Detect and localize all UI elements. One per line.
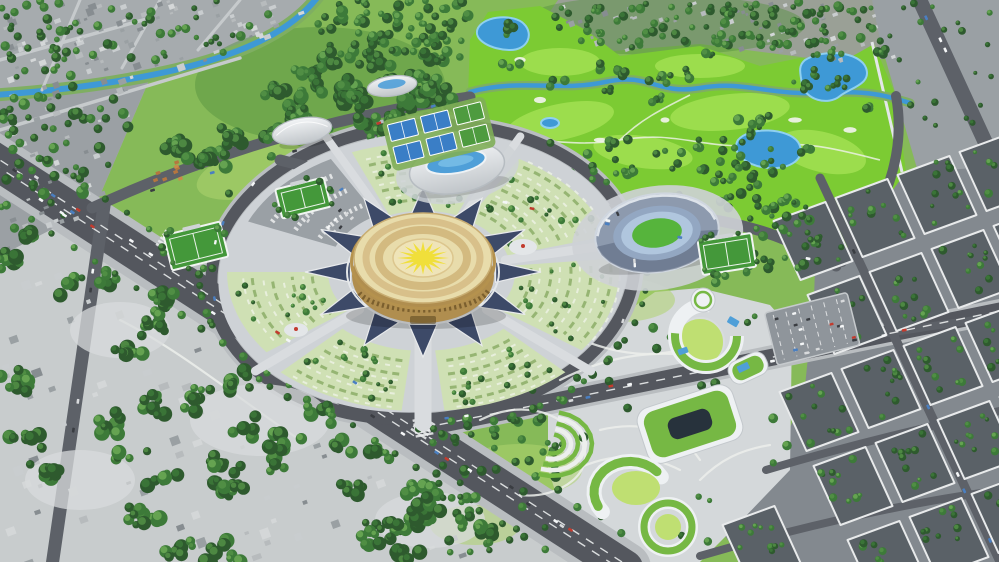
aerial-masterplan-render xyxy=(0,0,999,562)
arena-entrance xyxy=(410,316,436,324)
render-canvas xyxy=(0,0,999,562)
pond-small xyxy=(541,118,559,128)
monument xyxy=(521,244,525,248)
